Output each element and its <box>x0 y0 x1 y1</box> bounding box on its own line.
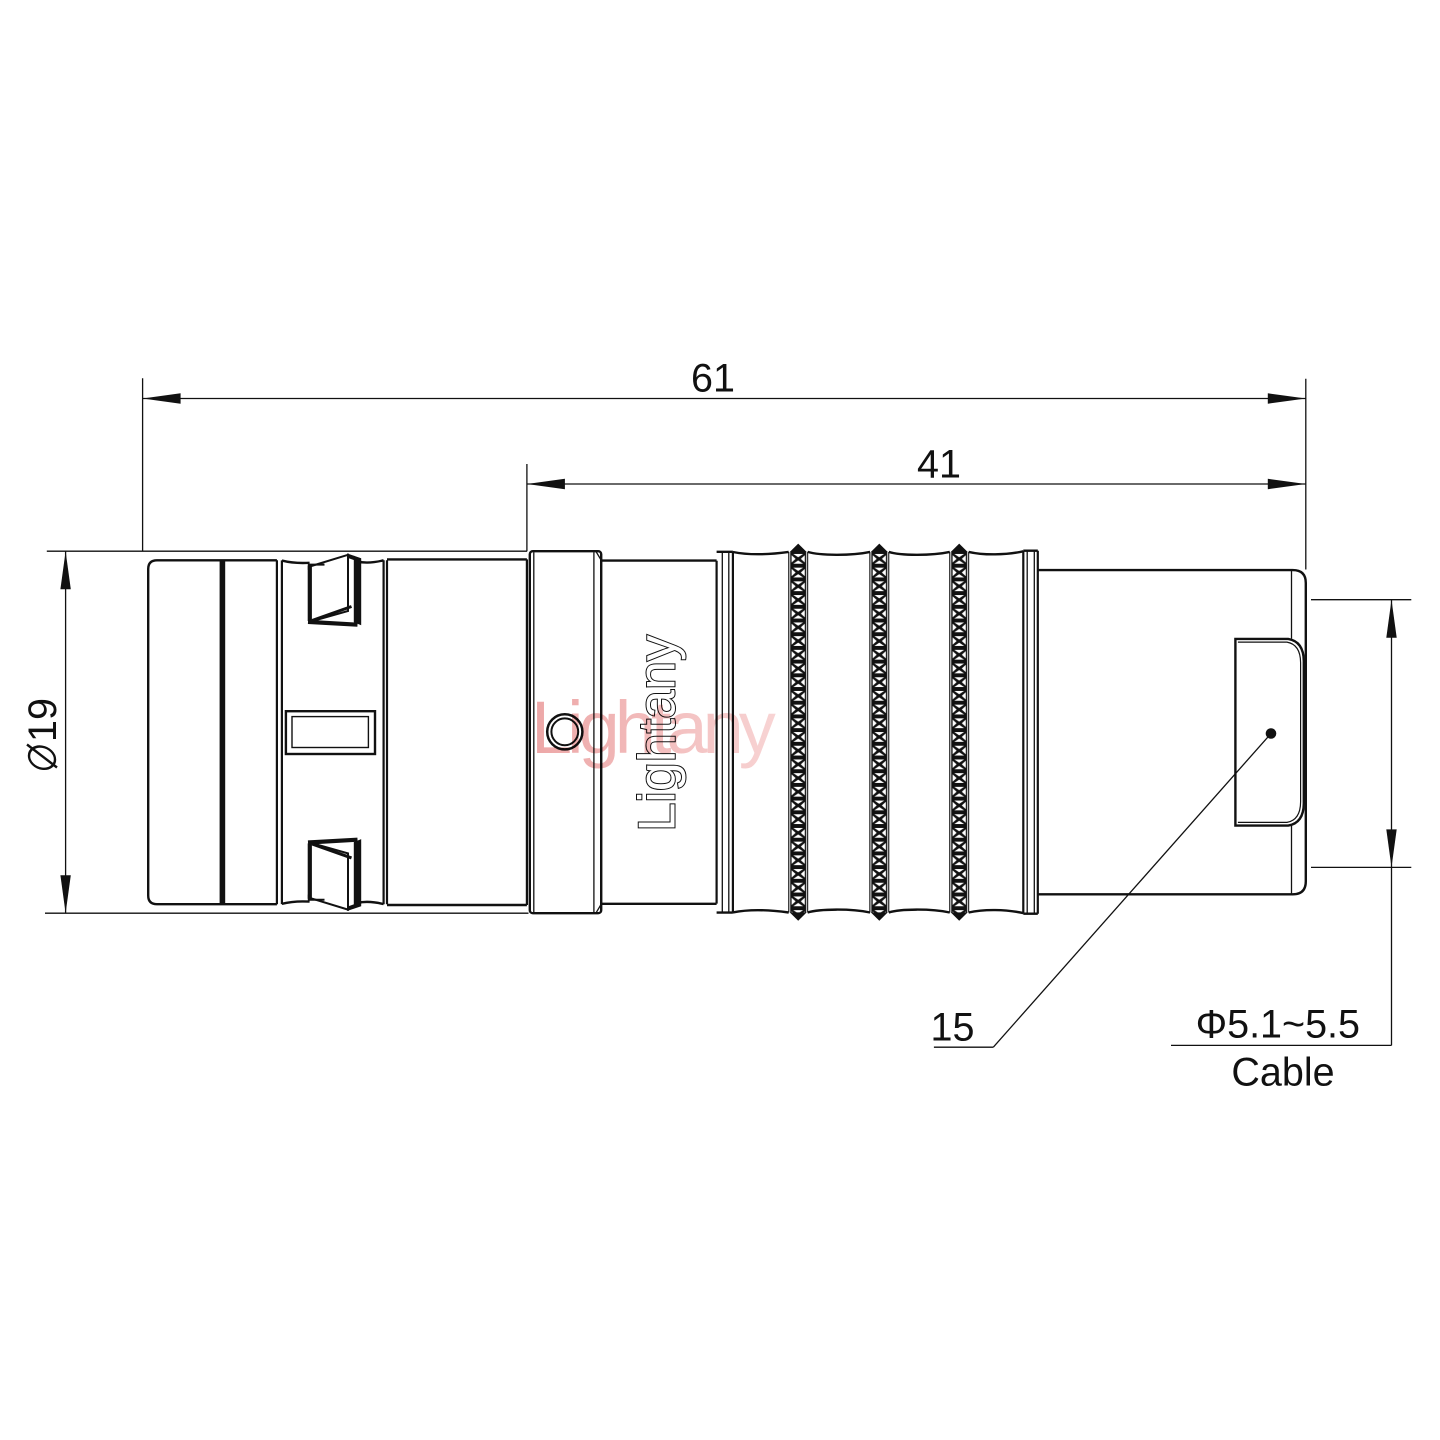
svg-text:Lightany: Lightany <box>531 686 776 769</box>
svg-text:Cable: Cable <box>1231 1051 1334 1095</box>
svg-text:19: 19 <box>21 698 65 742</box>
svg-text:Φ5.1~5.5: Φ5.1~5.5 <box>1196 1002 1360 1046</box>
svg-text:15: 15 <box>931 1006 975 1050</box>
svg-text:61: 61 <box>691 356 735 400</box>
svg-text:41: 41 <box>917 442 961 486</box>
